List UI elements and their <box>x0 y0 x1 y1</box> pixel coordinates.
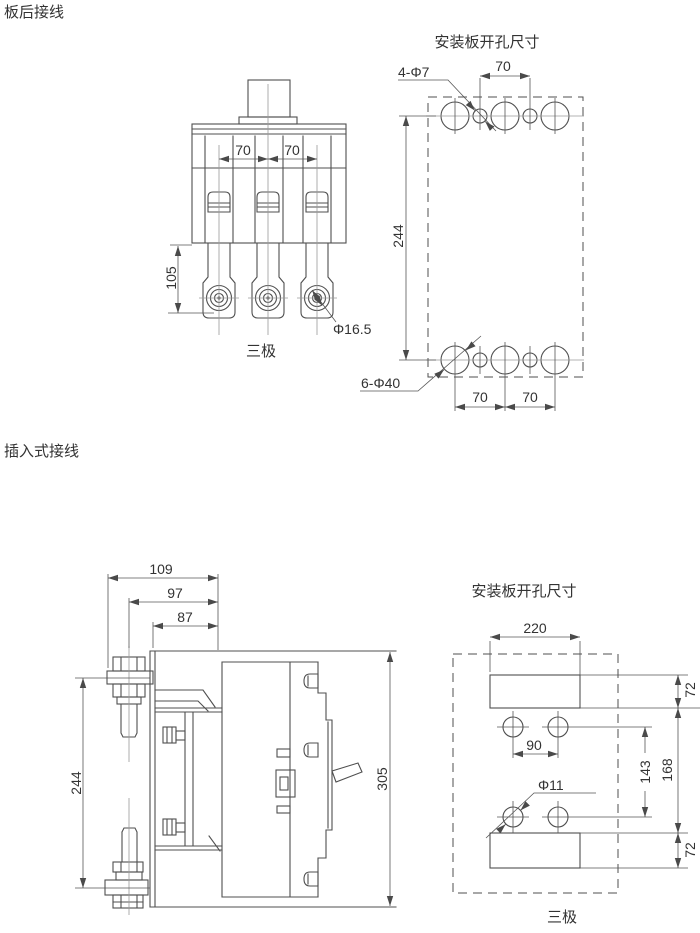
side-view-drawing: 109 97 87 244 305 <box>68 561 396 915</box>
breaker-handle <box>248 80 290 117</box>
toggle-handle <box>332 763 362 782</box>
rear-wiring-label: 板后接线 <box>4 3 64 21</box>
engineering-drawing-svg: 板后接线 插入式接线 70 70 105 <box>0 0 700 933</box>
breaker-body <box>192 124 346 243</box>
dim-72-bottom: 72 <box>682 842 698 858</box>
dim-143: 143 <box>637 760 653 784</box>
dim-phi11: Φ11 <box>538 777 564 793</box>
dim-87: 87 <box>177 609 193 625</box>
dim-244-side: 244 <box>68 771 84 795</box>
dim-97: 97 <box>167 585 183 601</box>
top-slot <box>490 675 580 708</box>
plugin-wiring-label: 插入式接线 <box>4 443 79 460</box>
bottom-slot <box>490 833 580 868</box>
dim-168: 168 <box>659 758 675 782</box>
plate-top-title: 安装板开孔尺寸 <box>434 33 539 51</box>
dim-220: 220 <box>523 620 547 636</box>
plate-holes <box>441 102 569 374</box>
dim-244: 244 <box>390 224 406 248</box>
dim-70-left: 70 <box>235 142 251 158</box>
base-bolts <box>163 727 185 835</box>
dim-70-right: 70 <box>284 142 300 158</box>
dim-70-top: 70 <box>495 58 511 74</box>
dim-72-top: 72 <box>682 682 698 698</box>
dim-small-holes: 4-Φ7 <box>398 64 430 80</box>
front-view-drawing: 70 70 105 Φ16.5 三极 <box>163 80 372 360</box>
plate-outline-dashed <box>428 97 583 377</box>
dim-305: 305 <box>374 767 390 791</box>
upper-stud-assembly <box>107 646 153 762</box>
front-view-pole-label: 三极 <box>246 343 276 360</box>
plate-bottom-pole-label: 三极 <box>547 909 577 926</box>
dim-90: 90 <box>526 737 542 753</box>
plate-outline-dashed-bottom <box>453 654 618 893</box>
dim-70-bottom-right: 70 <box>522 389 538 405</box>
mounting-plate-bottom-drawing: 安装板开孔尺寸 220 90 Φ11 143 72 168 72 <box>453 582 700 926</box>
dim-70-bottom-left: 70 <box>472 389 488 405</box>
plate-bottom-title: 安装板开孔尺寸 <box>471 582 576 600</box>
dim-109: 109 <box>149 561 173 577</box>
dim-105: 105 <box>163 266 179 290</box>
breaker-side-profile <box>222 662 362 897</box>
mounting-plate-top-drawing: 安装板开孔尺寸 70 244 70 70 4-Φ7 6-Φ40 <box>360 33 584 411</box>
dim-large-holes: 6-Φ40 <box>361 375 400 391</box>
drawing-page: 板后接线 插入式接线 70 70 105 <box>0 0 700 933</box>
dim-terminal-hole: Φ16.5 <box>333 321 372 337</box>
lower-stud-assembly <box>105 798 148 915</box>
